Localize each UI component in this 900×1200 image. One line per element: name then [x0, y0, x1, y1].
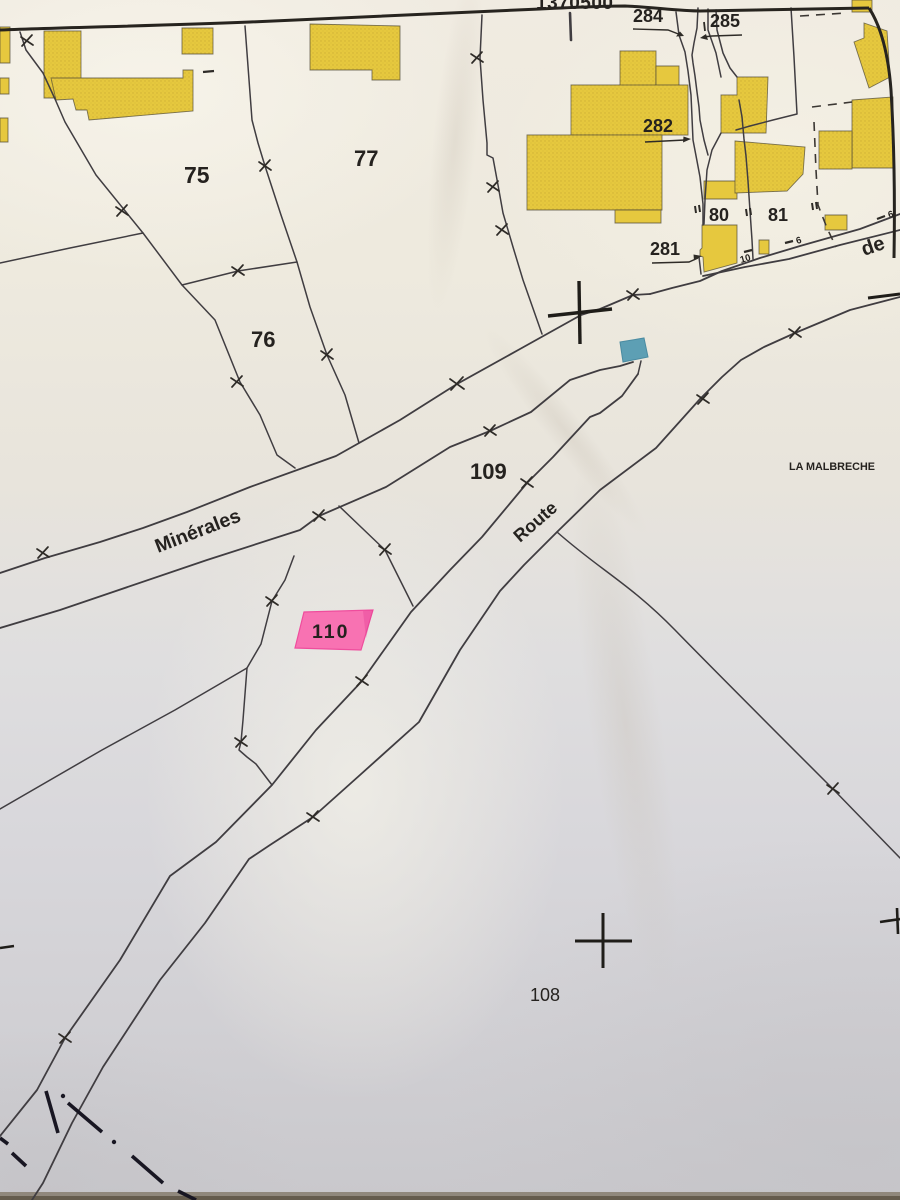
- svg-text:285: 285: [710, 11, 740, 31]
- svg-text:281: 281: [650, 239, 680, 259]
- svg-text:108: 108: [530, 985, 560, 1005]
- svg-text:284: 284: [633, 6, 663, 26]
- svg-text:80: 80: [709, 205, 729, 225]
- svg-text:110: 110: [312, 621, 349, 643]
- svg-text:81: 81: [768, 205, 788, 225]
- svg-text:282: 282: [643, 116, 673, 136]
- svg-text:75: 75: [184, 162, 210, 188]
- svg-text:109: 109: [470, 459, 507, 484]
- svg-text:LA MALBRECHE: LA MALBRECHE: [789, 461, 875, 473]
- svg-text:76: 76: [251, 327, 275, 352]
- svg-text:77: 77: [354, 146, 378, 171]
- svg-text:1370500: 1370500: [536, 0, 613, 14]
